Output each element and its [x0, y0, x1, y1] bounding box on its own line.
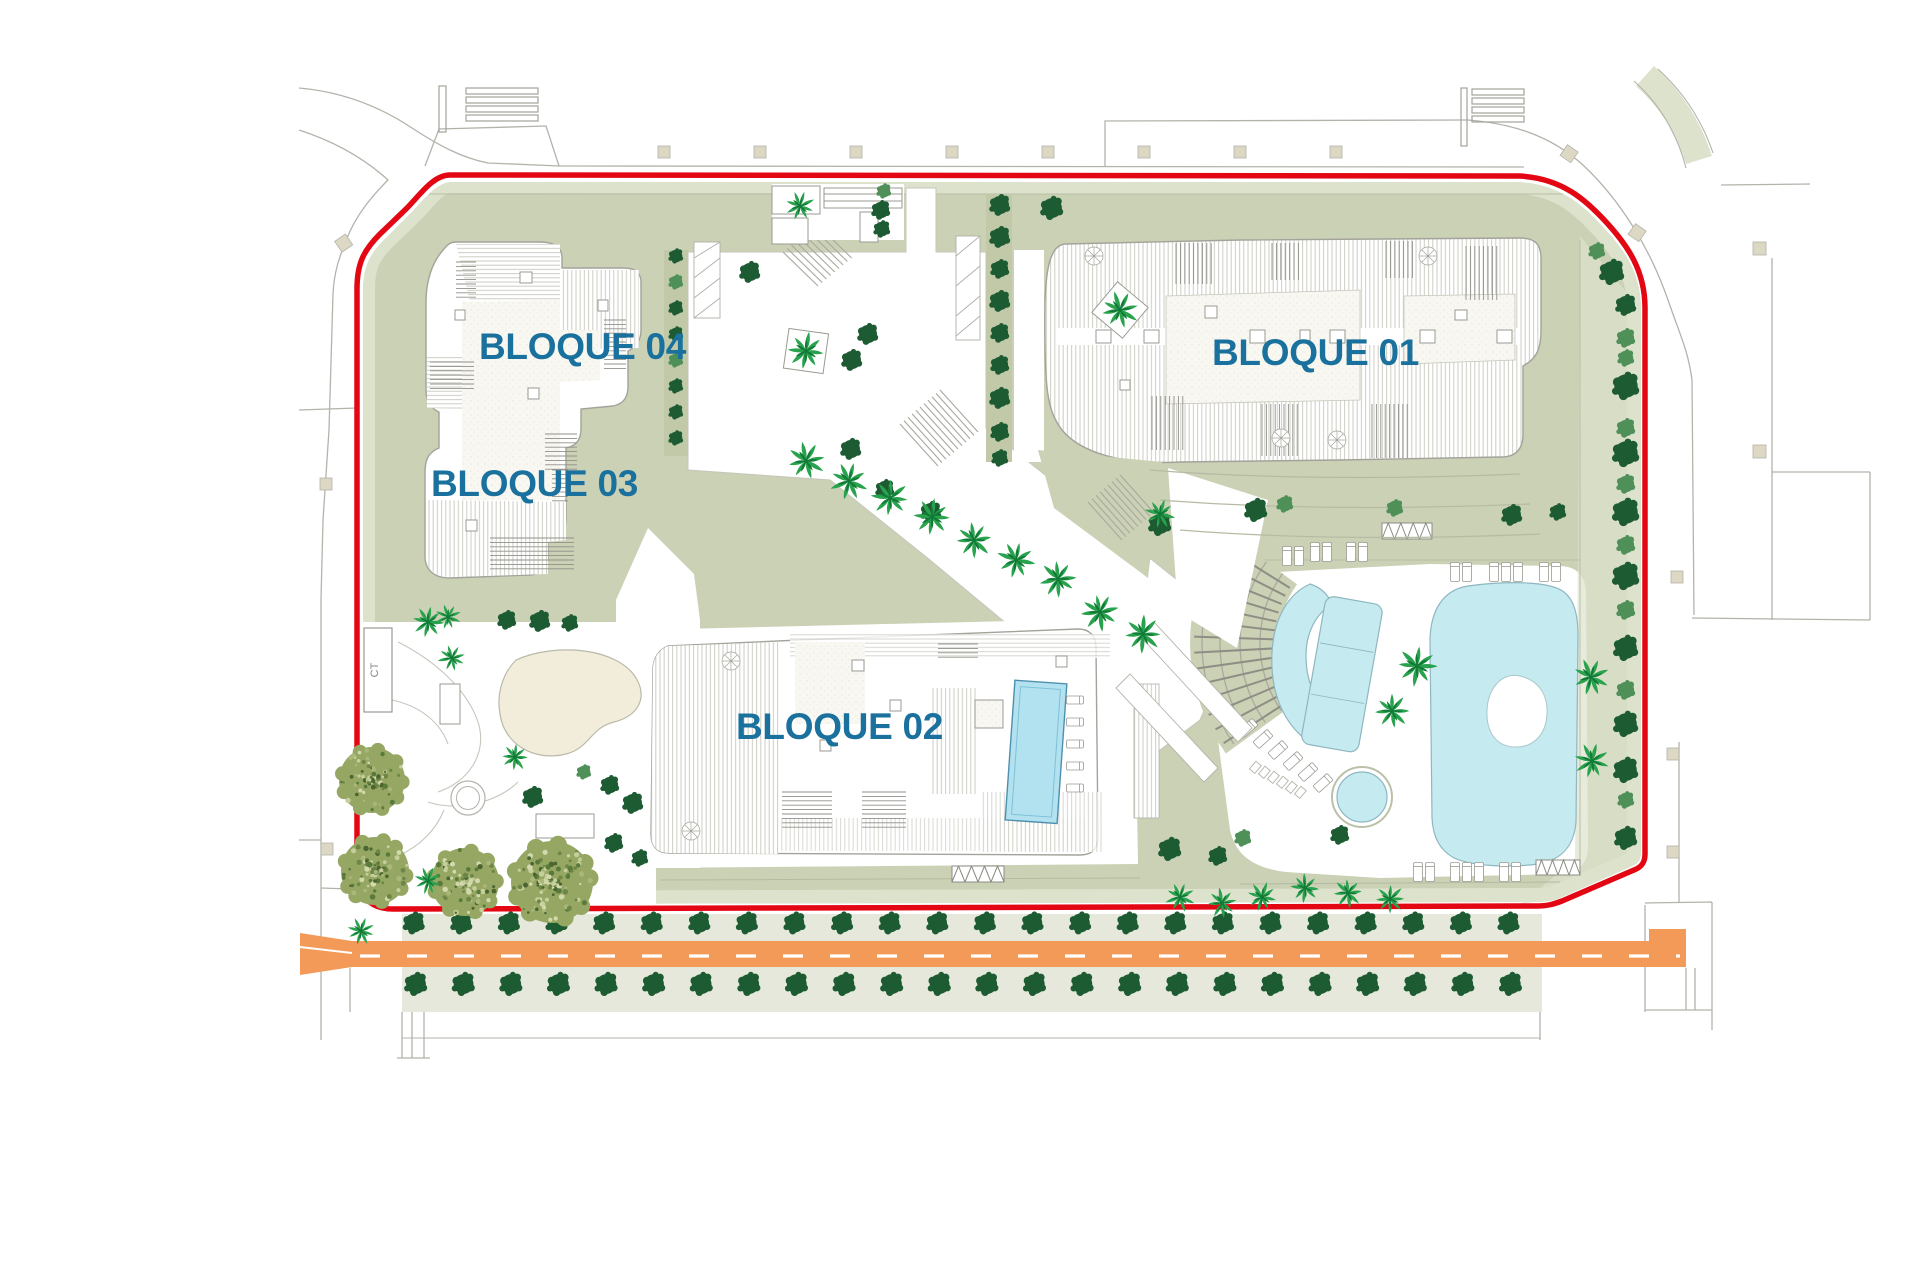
svg-text:BLOQUE 03: BLOQUE 03: [431, 463, 638, 504]
svg-text:BLOQUE 02: BLOQUE 02: [736, 706, 943, 747]
svg-text:BLOQUE 01: BLOQUE 01: [1212, 332, 1419, 373]
svg-text:BLOQUE 04: BLOQUE 04: [479, 326, 687, 367]
svg-text:CT: CT: [369, 662, 381, 677]
